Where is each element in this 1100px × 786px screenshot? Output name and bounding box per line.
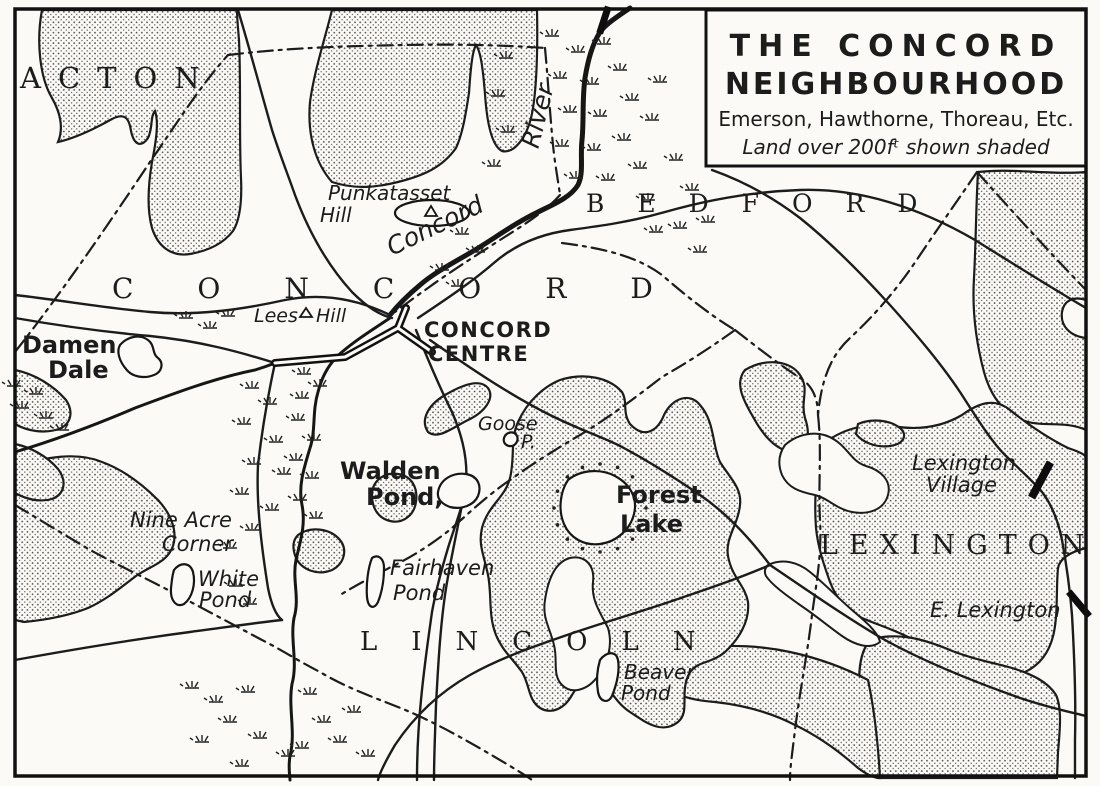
label-lees: Lees [254,305,298,327]
forest-lake-rim-dot [598,462,602,466]
label-forest: Forest [616,481,702,509]
town-label-bedford: BEDFORD [586,189,950,218]
forest-lake-rim-dot [556,523,560,527]
label-lees-hill: Hill [316,305,347,327]
map-subtitle: Emerson, Hawthorne, Thoreau, Etc. [718,107,1073,131]
label-dale: Dale [48,356,109,384]
label-nine-acre-corner: Corner [162,532,234,556]
label-e-lexington: E. Lexington [930,598,1061,622]
map-canvas: ACTON CONCORD BEDFORD LEXINGTON LINCOLN … [0,0,1100,786]
label-concord-centre-2: CENTRE [428,342,529,366]
forest-lake-rim-dot [556,489,560,493]
town-label-lexington: LEXINGTON [820,530,1096,561]
forest-lake-rim-dot [581,466,585,470]
label-punkatasset-hill: Hill [320,203,352,227]
forest-lake-rim-dot [598,550,602,554]
forest-lake-rim-dot [631,475,635,479]
label-lexington-village-1: Lexington [912,451,1016,475]
forest-lake-rim-dot [581,547,585,551]
label-beaver-pond: Pond [621,681,671,705]
town-label-lincoln: LINCOLN [360,627,730,657]
label-goose-p: P. [521,431,536,453]
label-fairhaven: Fairhaven [390,556,494,580]
label-concord-centre-1: CONCORD [424,318,552,342]
concord-neighbourhood-map: ACTON CONCORD BEDFORD LEXINGTON LINCOLN … [0,0,1100,786]
town-label-acton: ACTON [19,61,217,95]
label-lexington-village-2: Village [926,473,997,497]
forest-lake-rim-dot [566,475,570,479]
label-walden: Walden [340,457,441,485]
label-forest-lake: Lake [620,510,683,538]
label-walden-pond: Pond, [366,483,443,511]
label-fairhaven-pond: Pond [393,581,446,605]
map-legend: Land over 200fᵗ shown shaded [742,135,1050,159]
forest-lake-rim-dot [552,506,556,510]
label-punkatasset: Punkatasset [328,181,451,205]
map-title-line1: THE CONCORD [730,29,1063,64]
forest-lake-rim-dot [566,537,570,541]
shaded-region-east-band [973,171,1086,430]
label-damen: Damen [22,331,117,359]
forest-lake-rim-dot [616,466,620,470]
label-white-pond: Pond [199,588,252,612]
map-title-line2: NEIGHBOURHOOD [725,67,1067,102]
town-label-concord: CONCORD [112,272,717,305]
title-box: THE CONCORD NEIGHBOURHOOD Emerson, Hawth… [706,10,1086,166]
label-nine-acre: Nine Acre [130,508,232,532]
forest-lake-rim-dot [616,547,620,551]
